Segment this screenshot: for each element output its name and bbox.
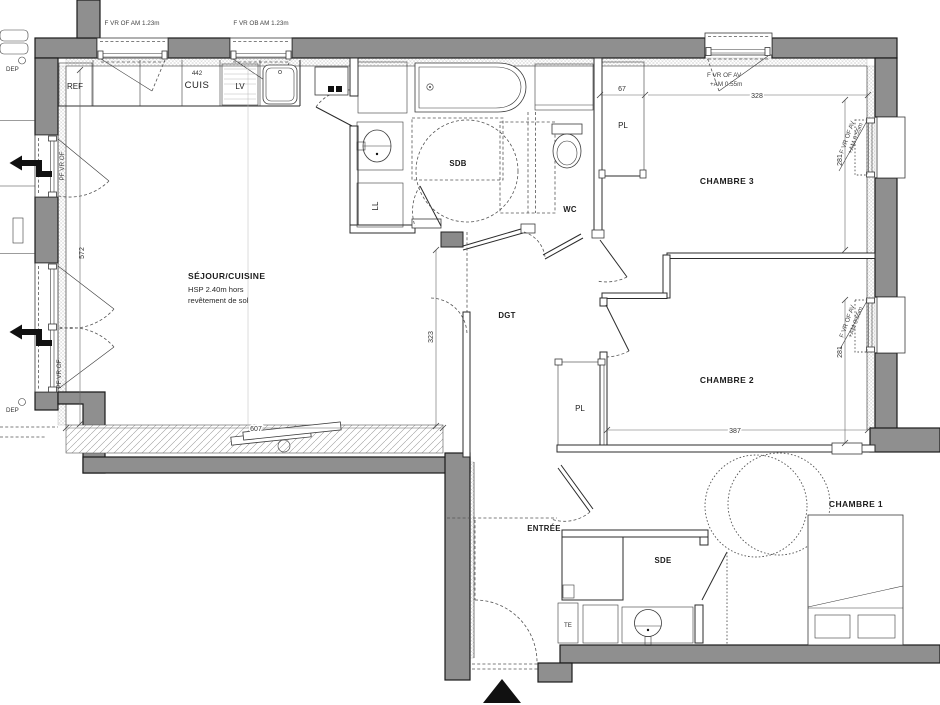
- site-label-dep-2: DEP: [6, 407, 19, 414]
- electrical-panel: [315, 67, 348, 95]
- entrance-door-arc: [475, 600, 537, 662]
- shower-room-sde: [558, 537, 693, 646]
- room-sublabel-hsp2: revêtement de sol: [188, 296, 249, 305]
- room-label-chambre1: CHAMBRE 1: [829, 499, 883, 509]
- dim-328: 328: [751, 93, 763, 100]
- dep-marker-2: [19, 399, 26, 406]
- dim-387: 387: [729, 428, 741, 435]
- dim-572: 572: [79, 247, 86, 259]
- duct-box: [441, 232, 463, 247]
- ch3-door-leaf: [600, 240, 627, 277]
- ch2-door-leaf: [606, 305, 629, 351]
- fixture-label-cuis-num: 442: [192, 70, 203, 77]
- room-sublabel-hsp1: HSP 2.40m hors: [188, 285, 244, 294]
- room-label-sde: SDE: [655, 556, 672, 565]
- ch1-door-swing-circle: [705, 455, 807, 557]
- dim-67: 67: [618, 86, 626, 93]
- room-label-wc: WC: [563, 205, 577, 214]
- room-label-chambre2: CHAMBRE 2: [700, 375, 754, 385]
- ch1-door-leaf: [702, 552, 727, 600]
- sdb-door-sill: [412, 219, 441, 228]
- kitchen-door-leaf: [316, 107, 352, 126]
- dep-marker-1: [19, 57, 26, 64]
- window-left-b: [35, 263, 114, 392]
- washing-machine: [357, 183, 403, 227]
- interior-walls: [316, 58, 875, 669]
- window-label-top3-line1: F VR OF AV: [707, 72, 742, 79]
- kitchen-sink: [263, 65, 297, 104]
- entrance-arrow: [483, 679, 521, 703]
- window-label-pf1: PF VR OF: [59, 151, 66, 180]
- window-left-a: [35, 135, 109, 197]
- fixture-label-cuis: CUIS: [185, 80, 210, 91]
- toilet-tank: [552, 124, 582, 134]
- ch3-closet: [599, 62, 646, 178]
- room-label-sdb: SDB: [449, 159, 466, 168]
- bathtub: [415, 63, 526, 112]
- window-label-top1: F VR OF AM 1.23m: [105, 20, 160, 27]
- window-label-top3-line2: +AM 0.55m: [710, 81, 742, 88]
- room-label-dgt: DGT: [498, 311, 515, 320]
- sde-washbasin: [622, 607, 693, 646]
- floor-plan: 572 607 323 67 328 281 281 387 F VR OF A…: [0, 0, 940, 705]
- shower: [562, 537, 623, 600]
- bed: [808, 515, 903, 645]
- dim-607: 607: [250, 426, 262, 433]
- room-label-chambre3: CHAMBRE 3: [700, 176, 754, 186]
- sejour-door-arc: [431, 298, 467, 334]
- window-label-pf2: PF VR OF: [56, 359, 63, 388]
- window-label-top2: F VR OB AM 1.23m: [233, 20, 288, 27]
- room-label-sejour: SÉJOUR/CUISINE: [188, 271, 265, 281]
- fixture-label-lv: LV: [235, 82, 245, 91]
- fixture-labels: REF 442 CUIS LV LL PL PL TE DEP DEP: [6, 66, 628, 629]
- room-labels: SÉJOUR/CUISINE HSP 2.40m hors revêtement…: [188, 159, 883, 565]
- floor-plan-page: 572 607 323 67 328 281 281 387 F VR OF A…: [0, 0, 940, 705]
- dim-323: 323: [428, 331, 435, 343]
- fixture-label-ll: LL: [371, 201, 380, 210]
- sdb-washbasin: [357, 122, 403, 170]
- fixture-label-pl-ch2: PL: [575, 404, 585, 413]
- site-label-dep-1: DEP: [6, 66, 19, 73]
- dim-281-ch2: 281: [837, 346, 844, 358]
- dim-281-ch3: 281: [837, 154, 844, 166]
- fixture-label-ref: REF: [67, 82, 83, 91]
- fixture-label-te: TE: [564, 622, 572, 629]
- wc-door-arc: [524, 232, 545, 257]
- fixture-label-pl-ch3: PL: [618, 121, 628, 130]
- room-label-entree: ENTRÉE: [527, 524, 560, 533]
- wc-room: [552, 124, 582, 168]
